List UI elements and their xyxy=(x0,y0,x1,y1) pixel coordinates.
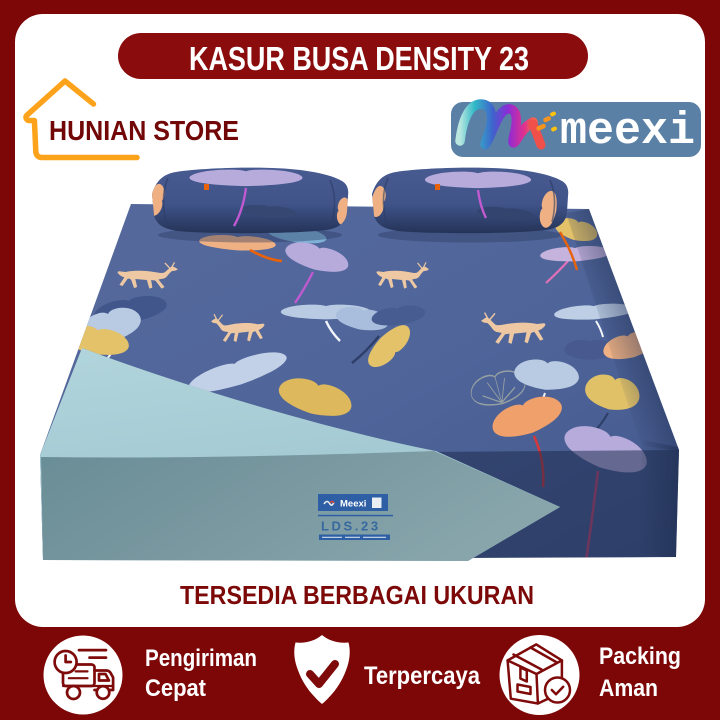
svg-text:Pengiriman: Pengiriman xyxy=(145,645,257,672)
svg-text:HUNIAN STORE: HUNIAN STORE xyxy=(49,115,239,146)
svg-text:KASUR BUSA DENSITY 23: KASUR BUSA DENSITY 23 xyxy=(189,41,529,78)
svg-text:meexi: meexi xyxy=(560,106,695,157)
svg-text:Packing: Packing xyxy=(599,643,681,670)
svg-text:Meexi: Meexi xyxy=(340,499,366,510)
svg-text:LDS.23: LDS.23 xyxy=(321,519,381,534)
svg-text:Terpercaya: Terpercaya xyxy=(364,662,481,690)
svg-text:Aman: Aman xyxy=(599,675,658,702)
svg-text:TERSEDIA BERBAGAI UKURAN: TERSEDIA BERBAGAI UKURAN xyxy=(180,580,534,610)
svg-text:Cepat: Cepat xyxy=(145,675,206,702)
